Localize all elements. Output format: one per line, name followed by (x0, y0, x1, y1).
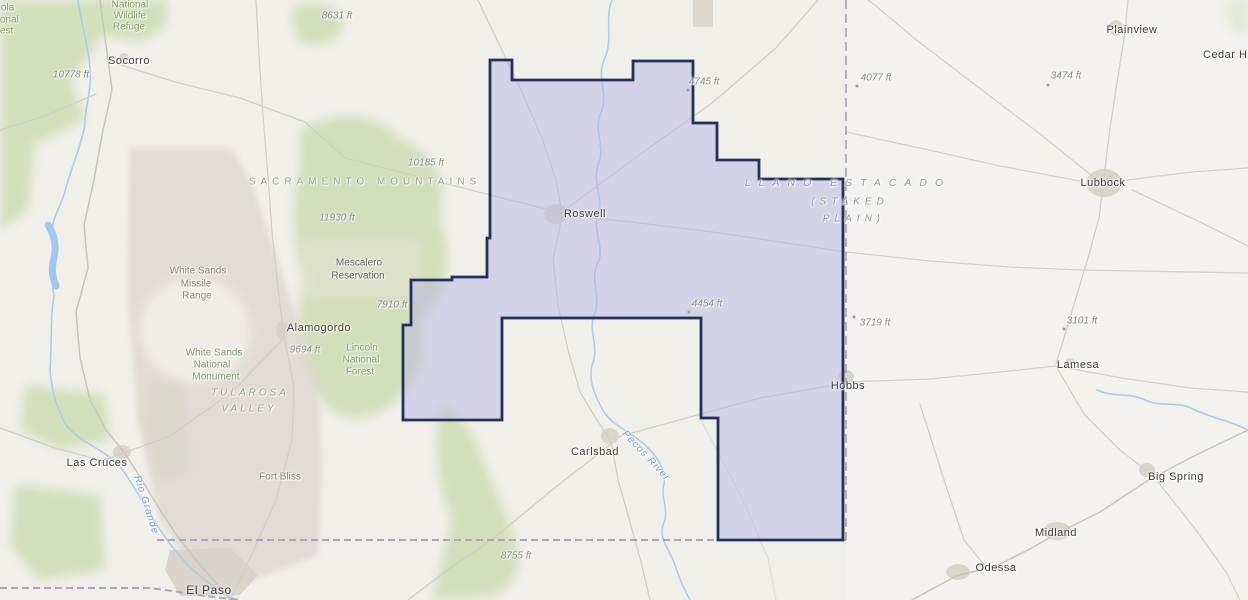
area-label-white-sands-nm: White Sands (186, 348, 243, 359)
city-label-lubbock: Lubbock (1080, 177, 1125, 189)
city-label-carlsbad: Carlsbad (571, 446, 619, 458)
elevation-label: 9694 ft (290, 345, 321, 356)
area-label-lincoln-nf: Lincoln (346, 343, 378, 354)
plains-tint (846, 0, 1248, 600)
area-label-wsmr: White Sands (170, 266, 227, 277)
elevation-label: 4745 ft (689, 77, 720, 88)
elevation-point-marker (687, 89, 690, 92)
area-label-cibola-fragment: onal (0, 15, 19, 26)
area-label-lincoln-nf: National (343, 355, 380, 366)
city-label-odessa: Odessa (976, 562, 1017, 574)
elevation-label: 3474 ft (1051, 71, 1082, 82)
region-label-plain: PLAIN) (823, 214, 885, 225)
elevation-label: 8631 ft (322, 11, 353, 22)
area-label-wsmr: Missile (181, 279, 212, 290)
city-label-plainview: Plainview (1107, 24, 1158, 36)
elevation-label: 10185 ft (408, 158, 444, 169)
area-label-wildlife-refuge: Wildlife (114, 11, 146, 22)
region-label-staked: (STAKED (811, 197, 889, 208)
area-label-mescalero: Mescalero (336, 258, 382, 269)
elevation-label: 10778 ft (53, 70, 89, 81)
city-label-midland: Midland (1035, 527, 1077, 539)
city-label-hobbs: Hobbs (831, 380, 865, 392)
area-label-white-sands-nm: Monument (192, 372, 239, 383)
region-label-sacramento-mountains: SACRAMENTO MOUNTAINS (249, 177, 481, 188)
region-label-valley: VALLEY (221, 404, 276, 415)
elevation-label: 3719 ft (860, 318, 891, 329)
area-label-wildlife-refuge: Refuge (113, 22, 145, 33)
area-label-mescalero: Reservation (331, 271, 384, 282)
elevation-label: 4077 ft (861, 73, 892, 84)
area-label-cibola-fragment: est (0, 26, 13, 37)
area-label-fort-bliss: Fort Bliss (259, 472, 301, 483)
city-label-alamogordo: Alamogordo (287, 322, 351, 334)
area-label-lincoln-nf: Forest (346, 367, 374, 378)
area-label-wsmr: Range (182, 291, 211, 302)
elevation-label: 8755 ft (501, 551, 532, 562)
region-label-tularosa: TULAROSA (211, 388, 289, 399)
area-label-cibola-fragment: ola (1, 3, 14, 14)
elevation-label: 7910 ft (377, 300, 408, 311)
elevation-label: 4454 ft (692, 299, 723, 310)
elevation-point-marker (688, 311, 691, 314)
elevation-point-marker (1063, 328, 1066, 331)
area-label-wildlife-refuge: National (112, 0, 149, 11)
city-label-lamesa: Lamesa (1057, 359, 1099, 371)
city-label-socorro: Socorro (108, 55, 150, 67)
city-label-big-spring: Big Spring (1148, 471, 1204, 483)
map-viewport[interactable]: Socorro Roswell Carlsbad Hobbs Alamogord… (0, 0, 1248, 600)
elevation-point-marker (853, 316, 856, 319)
city-label-roswell: Roswell (564, 208, 606, 220)
elevation-label: 11930 ft (319, 213, 354, 224)
elevation-point-marker (1047, 84, 1050, 87)
region-label-llano-estacado: LLANO ESTACADO (745, 177, 951, 189)
area-label-white-sands-nm: National (194, 360, 231, 371)
city-label-el-paso: El Paso (186, 583, 232, 597)
elevation-point-marker (856, 85, 859, 88)
elevation-label: 3101 ft (1067, 316, 1098, 327)
city-label-cedar-h: Cedar H (1203, 49, 1247, 61)
city-label-las-cruces: Las Cruces (67, 457, 128, 469)
